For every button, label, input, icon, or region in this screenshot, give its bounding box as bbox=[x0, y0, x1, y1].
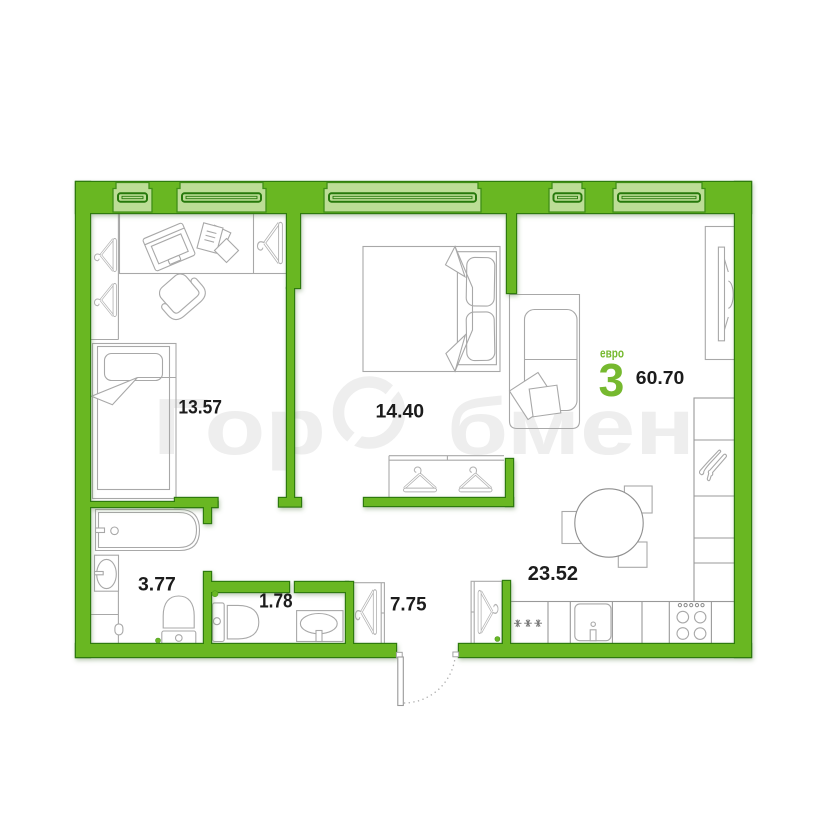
svg-text:3.77: 3.77 bbox=[138, 574, 176, 596]
svg-text:60.70: 60.70 bbox=[636, 367, 685, 388]
svg-text:13.57: 13.57 bbox=[178, 397, 222, 418]
svg-text:Гор: Гор bbox=[153, 382, 326, 471]
svg-text:23.52: 23.52 bbox=[528, 563, 578, 585]
svg-text:бмен: бмен bbox=[447, 382, 695, 471]
svg-text:3: 3 bbox=[599, 354, 625, 406]
svg-text:14.40: 14.40 bbox=[376, 400, 425, 422]
svg-text:7.75: 7.75 bbox=[390, 593, 427, 615]
svg-text:1.78: 1.78 bbox=[259, 589, 293, 612]
